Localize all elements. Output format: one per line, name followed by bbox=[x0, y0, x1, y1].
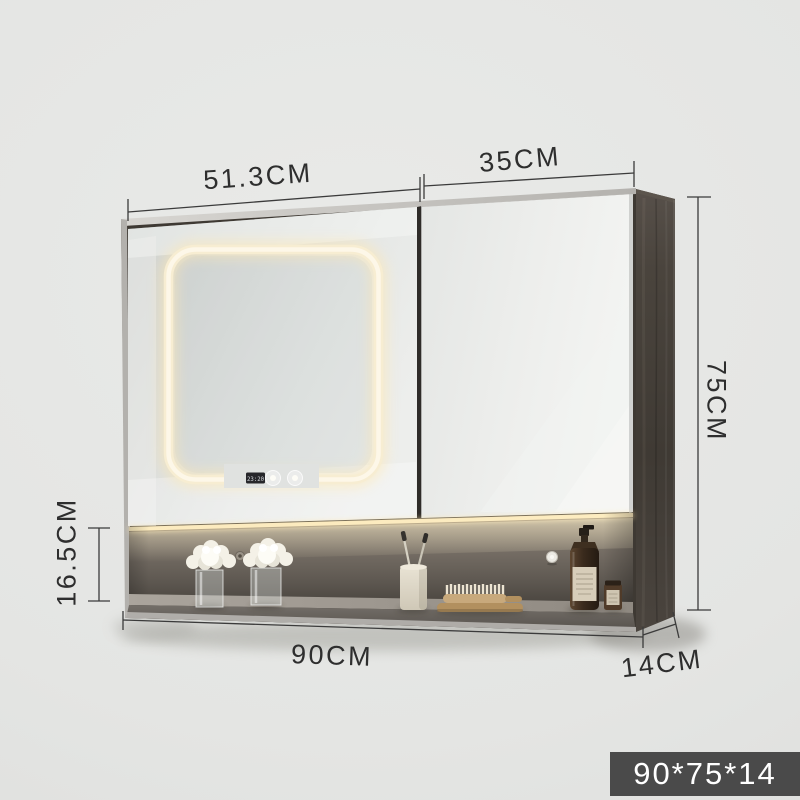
door-seam bbox=[417, 206, 422, 518]
cosmetic-jar bbox=[604, 581, 622, 611]
right-mirror-door bbox=[422, 194, 633, 518]
led-light-frame bbox=[169, 250, 379, 489]
product-dimension-diagram: 23:20 bbox=[0, 0, 800, 800]
touch-button-icon bbox=[266, 471, 281, 486]
size-badge: 90*75*14 bbox=[610, 752, 800, 796]
dim-label-shelf-height: 16.5CM bbox=[52, 497, 83, 607]
mirror-controls: 23:20 bbox=[246, 471, 303, 486]
dim-label-total-width: 90CM bbox=[290, 639, 373, 673]
dim-label-height: 75CM bbox=[701, 360, 732, 442]
jar-label bbox=[607, 590, 620, 605]
cabinet-side-panel bbox=[636, 189, 675, 632]
clock-display: 23:20 bbox=[247, 475, 264, 483]
open-shelf bbox=[125, 513, 636, 632]
touch-button-icon bbox=[288, 471, 303, 486]
wall-knob-icon bbox=[547, 552, 558, 566]
cabinet-illustration: 23:20 bbox=[0, 0, 800, 800]
